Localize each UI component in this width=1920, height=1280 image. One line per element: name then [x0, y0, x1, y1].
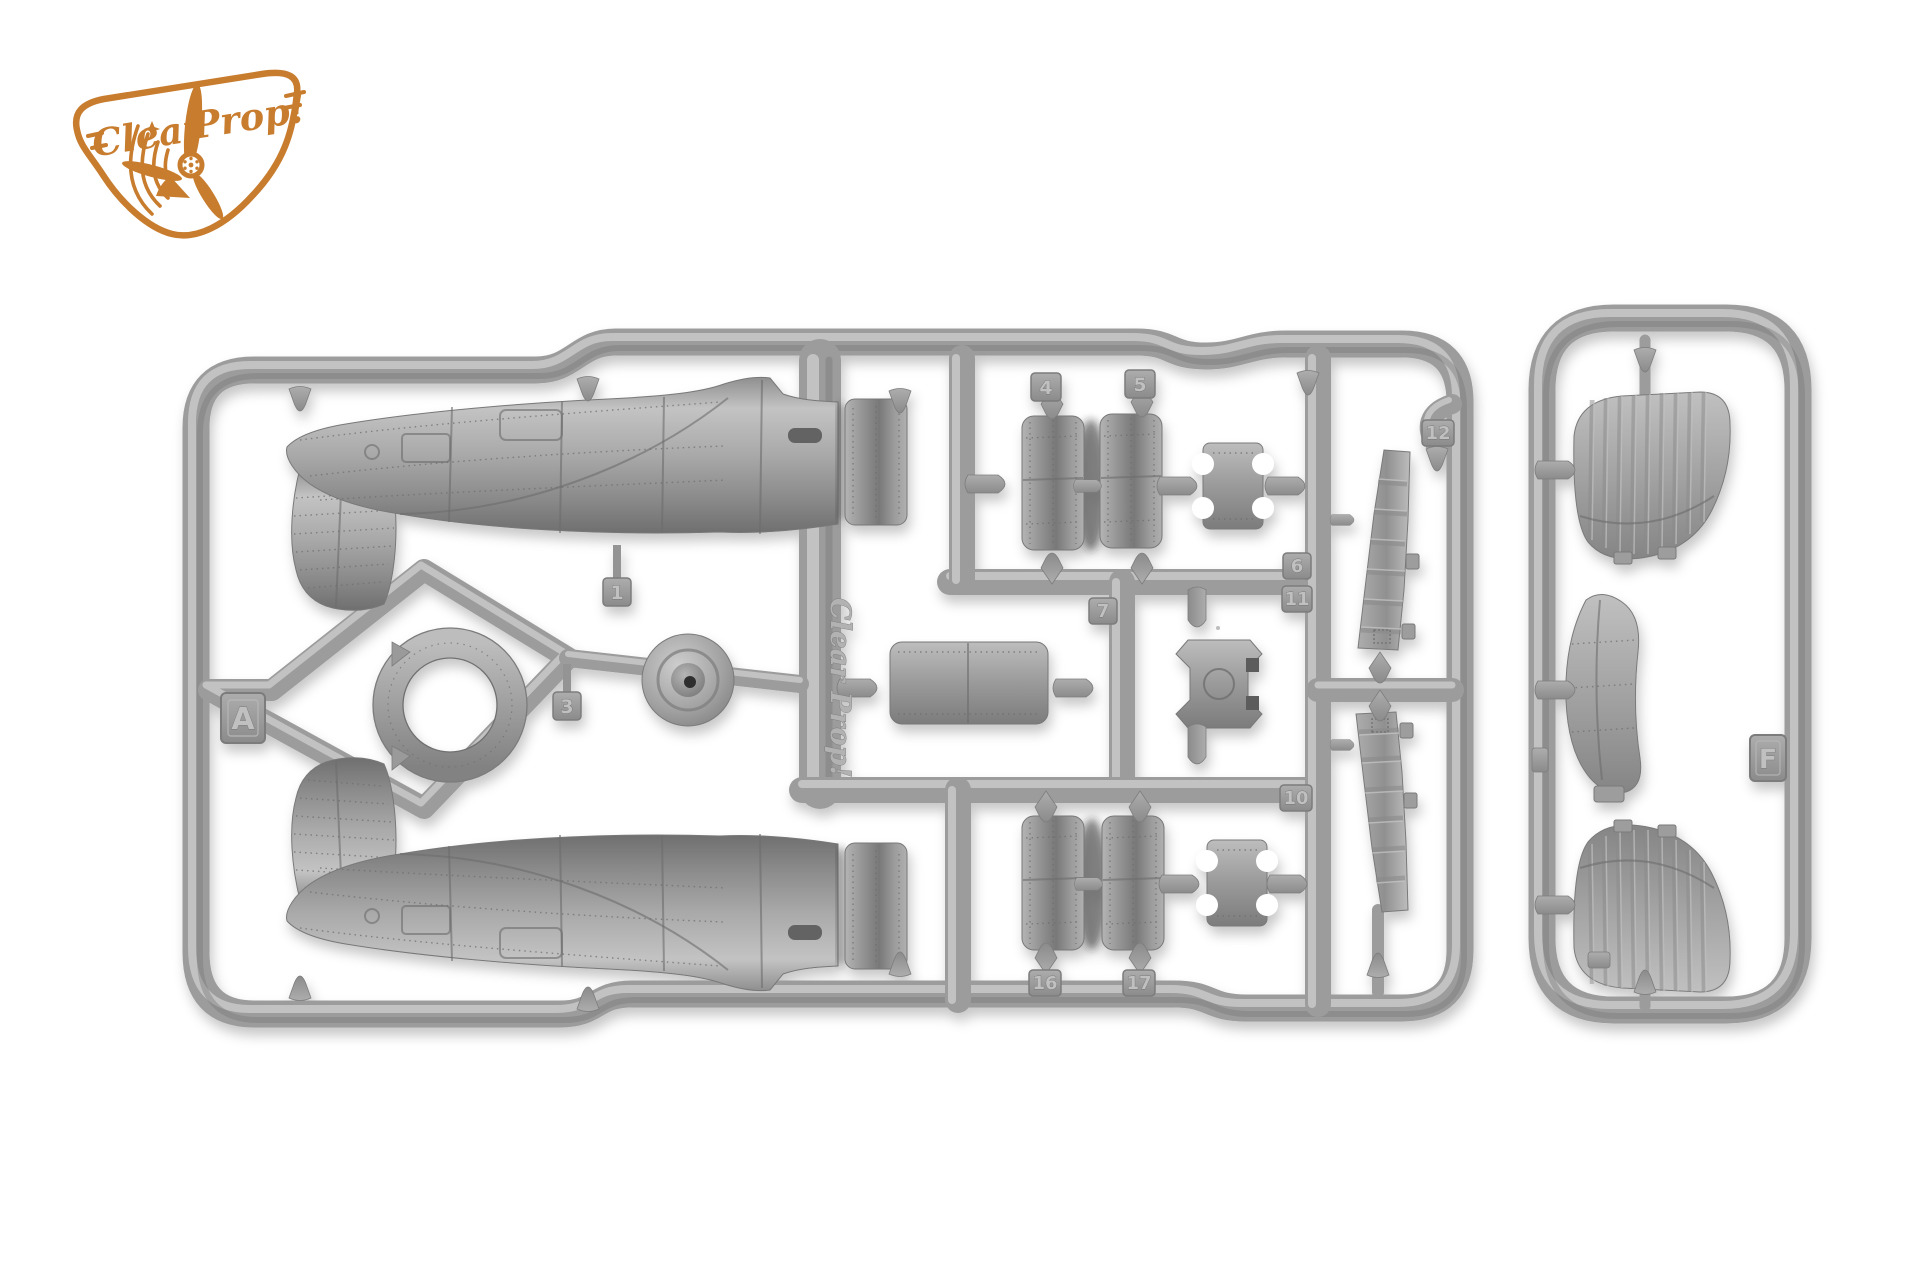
- svg-text:17: 17: [1126, 973, 1151, 994]
- part-number-tag: 7: [1089, 598, 1117, 624]
- wheel-disc-part: [642, 634, 734, 726]
- part-number-tag: 6: [1283, 553, 1311, 579]
- cowl-band-part-5: [1100, 414, 1162, 548]
- part-number-tag: 10: [1280, 785, 1312, 811]
- part-number-tag: 12: [1422, 420, 1454, 446]
- part-number-tag: 17: [1123, 970, 1155, 996]
- sprue-f: F: [1532, 313, 1802, 1016]
- part-number-tag: 11: [1282, 586, 1312, 612]
- molded-brand-script: Clear Prop!: [824, 598, 857, 778]
- flap-blade-lower: [1356, 712, 1417, 912]
- flap-blade-upper: [1358, 450, 1419, 650]
- engine-crankcase-part: [1176, 640, 1262, 728]
- part-number-tag: 4: [1031, 373, 1061, 401]
- dust-speck: [1216, 626, 1220, 630]
- part-number-tag: 5: [1125, 370, 1155, 398]
- svg-text:11: 11: [1284, 589, 1309, 610]
- notched-panel-upper: [1192, 443, 1274, 529]
- notched-panel-lower: [1196, 840, 1278, 926]
- product-photo: Clear Prop! A 1 3 4 5 6 11 7 10 12: [0, 0, 1920, 1280]
- fin-part-middle: [1566, 594, 1641, 802]
- sprue-f-letter-tag: F: [1750, 735, 1786, 781]
- sprue-a-letter: A: [231, 702, 255, 737]
- mid-panel-part: [890, 642, 1048, 724]
- clear-prop-logo: Clear Prop!: [76, 73, 309, 235]
- svg-text:16: 16: [1032, 973, 1057, 994]
- svg-text:4: 4: [1039, 377, 1052, 399]
- part-number-tag: 3: [553, 692, 581, 720]
- svg-text:12: 12: [1425, 423, 1450, 444]
- svg-text:1: 1: [610, 582, 623, 604]
- sprue-a-letter-tag: A: [221, 693, 265, 743]
- svg-text:3: 3: [560, 696, 573, 718]
- svg-text:10: 10: [1283, 788, 1308, 809]
- svg-text:7: 7: [1097, 601, 1110, 622]
- model-kit-sprues-photo: Clear Prop! A 1 3 4 5 6 11 7 10 12: [0, 0, 1920, 1280]
- stabilizer-part-upper: [1574, 392, 1730, 564]
- sprue-f-letter: F: [1759, 744, 1777, 775]
- cowl-ring-part: [373, 628, 527, 782]
- svg-text:5: 5: [1133, 374, 1146, 396]
- cowl-band-part-17: [1102, 816, 1164, 950]
- svg-text:6: 6: [1291, 556, 1304, 577]
- sprue-a: Clear Prop! A 1 3 4 5 6 11 7 10 12: [192, 337, 1464, 1020]
- part-number-tag: 1: [603, 578, 631, 606]
- part-number-tag: 16: [1029, 970, 1061, 996]
